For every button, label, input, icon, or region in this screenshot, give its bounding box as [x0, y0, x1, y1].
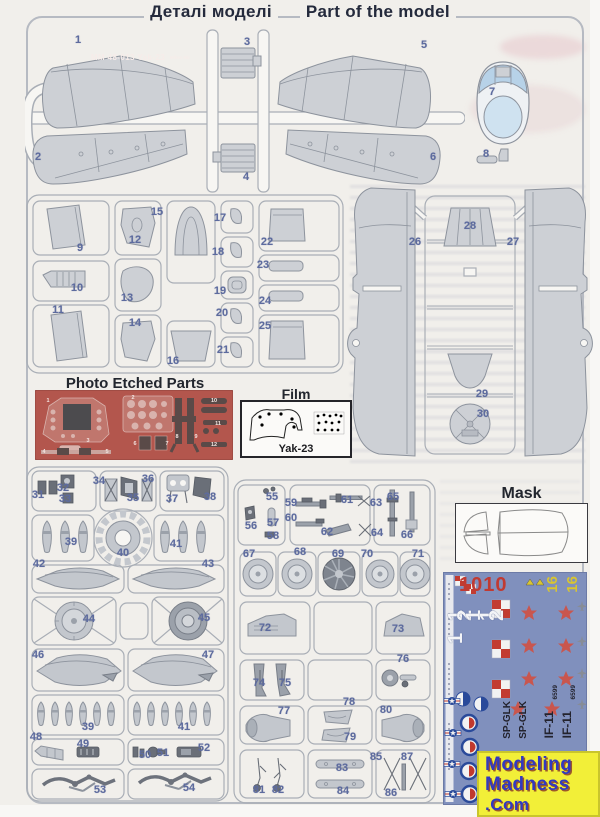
part-72	[248, 614, 296, 636]
pe-brand-logo: Mikro Mir	[170, 55, 190, 60]
fuselage-half-26	[348, 188, 415, 456]
drop-tank-42	[37, 568, 119, 589]
part-12	[121, 207, 155, 247]
compressor-fan-69	[323, 558, 355, 590]
part-10	[43, 271, 85, 287]
mask-graphic	[456, 504, 586, 561]
wheel-71	[400, 559, 430, 589]
part-15	[175, 207, 207, 255]
mask-heading: Mask	[455, 485, 588, 503]
parts-37-38	[167, 475, 211, 503]
part-24	[269, 291, 303, 301]
canopy-part-7	[465, 55, 555, 170]
part-20	[231, 309, 242, 324]
part-3	[221, 48, 261, 78]
part-22	[269, 209, 305, 241]
sprue-b-small-parts	[25, 193, 345, 375]
decal-number-16: 16	[564, 576, 581, 593]
parts-55-58	[245, 487, 275, 537]
part-17	[231, 209, 242, 224]
part-16	[171, 331, 211, 361]
page-title: Деталі моделіPart of the model	[0, 2, 600, 22]
pe-instrument-panel	[43, 398, 109, 442]
decal-code-sp-glk: SP-GLK	[518, 701, 529, 739]
decal-code-if-11: IF-11	[560, 711, 574, 738]
film-graphic	[242, 402, 350, 444]
wheel-44	[55, 602, 93, 640]
part-14	[121, 321, 155, 361]
wing-part-6	[286, 130, 440, 184]
parts-78-79	[322, 710, 352, 742]
photo-etched-fret	[35, 390, 233, 460]
decal-code-sp-glk: SP-GLK	[502, 701, 513, 739]
part-29	[448, 354, 492, 388]
drop-tank-43	[133, 568, 215, 589]
parts-65-66	[387, 490, 417, 536]
pe-part-6	[139, 436, 151, 450]
film-box: Yak-23	[240, 400, 352, 458]
wheel-67	[243, 559, 273, 589]
wheel-68	[282, 559, 312, 589]
watermark-line1: Modeling	[485, 755, 598, 775]
decal-number-121-121: 121121	[452, 605, 508, 639]
watermark-line3: .Com	[485, 795, 598, 815]
part-18	[231, 243, 242, 258]
parts-31-33	[38, 475, 74, 503]
part-4	[213, 144, 255, 172]
parts-59-64	[296, 494, 371, 536]
sprue-d-armament	[25, 465, 230, 805]
fuel-tank-46	[37, 655, 121, 686]
part-11	[51, 311, 87, 361]
part-23	[269, 261, 303, 271]
modelingmadness-watermark: Modeling Madness .Com	[477, 751, 600, 817]
part-19	[228, 277, 246, 293]
part-13	[121, 267, 153, 302]
mask-box	[455, 503, 588, 563]
part-8	[477, 149, 508, 163]
sprue-f-details	[232, 478, 437, 805]
part-30	[450, 404, 490, 444]
parts-74-75	[254, 664, 290, 696]
decal-number-16: 16	[544, 576, 561, 593]
parts-81-82	[254, 758, 287, 792]
part-76	[382, 670, 416, 687]
gear-strut-54	[139, 773, 211, 790]
part-80	[382, 714, 424, 741]
watermark-line2: Madness	[485, 775, 598, 795]
sprue-c-fuselage	[345, 178, 595, 470]
parts-85-87	[384, 758, 426, 790]
fuselage-half-27	[525, 188, 592, 456]
part-77	[246, 714, 290, 741]
title-english: Part of the model	[300, 2, 456, 21]
pe-dial-panel	[123, 396, 173, 432]
decal-serial-6599: 6599	[552, 685, 559, 699]
wheel-70	[366, 560, 394, 588]
pe-part-7	[155, 436, 167, 450]
gear-strut-53	[43, 775, 115, 792]
sprue-a-wings	[25, 26, 465, 196]
part-25	[269, 321, 305, 359]
wheel-45	[169, 602, 207, 640]
parts-34-36	[105, 477, 152, 501]
decal-number-1010: 1010	[459, 574, 508, 597]
fuel-tank-47	[133, 655, 217, 686]
film-dot-grid	[314, 412, 344, 434]
decal-code-if-11: IF-11	[542, 711, 556, 738]
part-28	[444, 208, 496, 246]
film-label: Yak-23	[242, 443, 350, 455]
engine-ring-40	[99, 514, 147, 562]
instruction-sheet-page: Деталі моделіPart of the model	[0, 0, 600, 817]
decal-serial-6599: 6599	[570, 685, 577, 699]
title-ukrainian: Деталі моделі	[144, 2, 278, 21]
wing-part-2	[33, 130, 187, 184]
part-21	[231, 343, 242, 358]
parts-48-52	[35, 746, 201, 760]
part-73	[384, 614, 424, 636]
pe-fret-code: MM 48-013 Yak-23	[78, 53, 178, 62]
parts-83-84	[316, 760, 364, 788]
part-9	[47, 205, 85, 249]
